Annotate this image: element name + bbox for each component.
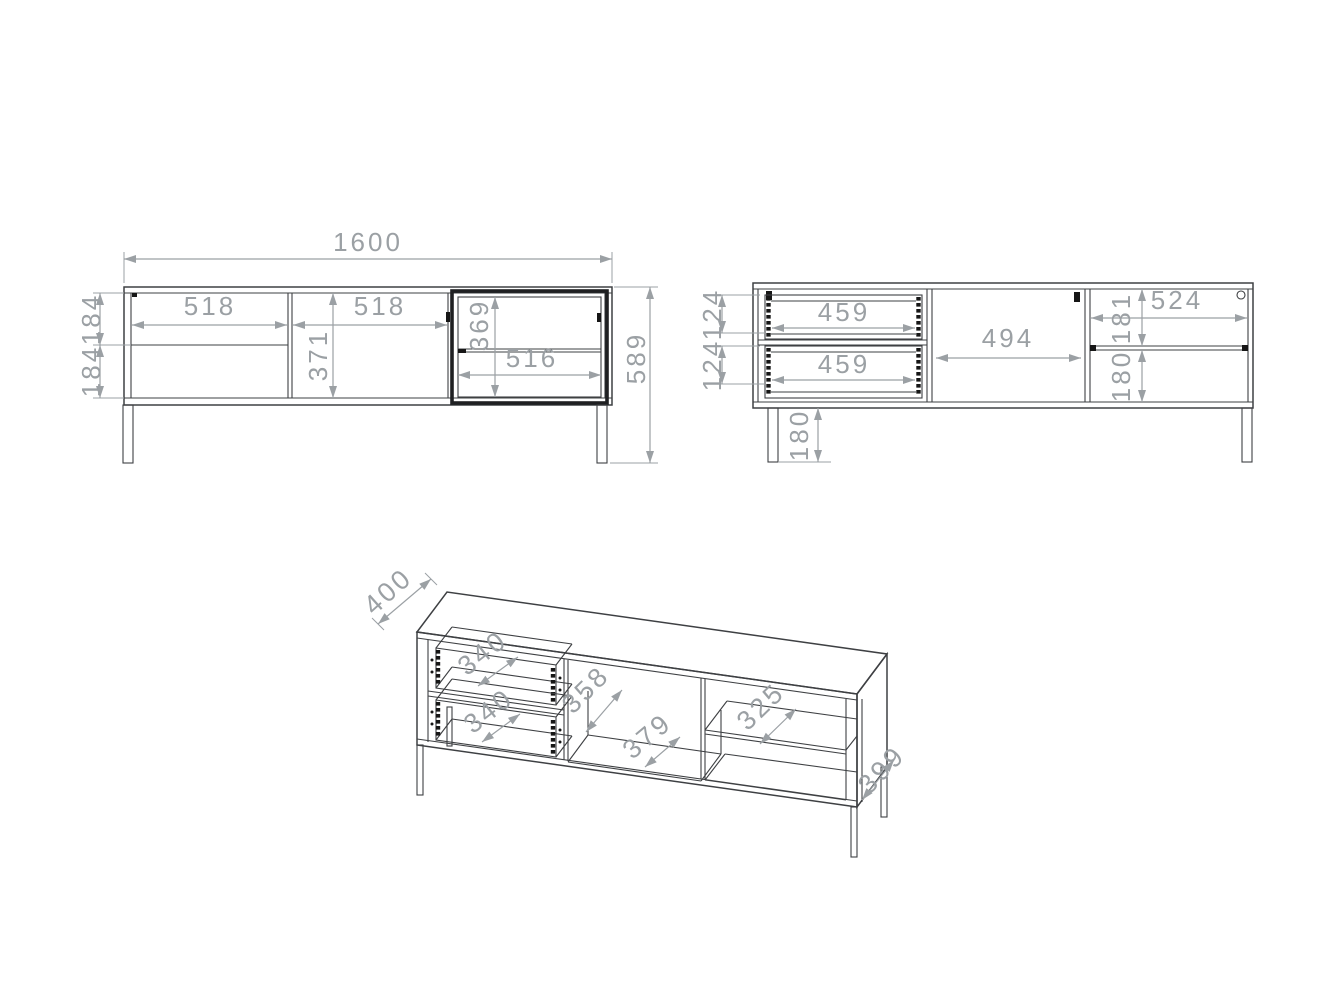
internal-left-leg <box>768 408 778 462</box>
dim-text-top-drawer-height: 184 <box>80 293 106 345</box>
iso-front-right-leg <box>851 807 857 857</box>
dim-bottom-drawer-depth: 340 <box>458 682 520 742</box>
dim-partition-depth: 358 <box>556 660 622 732</box>
dim-text-top-drawer-width: 459 <box>818 297 870 327</box>
internal-cam-detail <box>1237 291 1245 299</box>
dim-text-glass-opening-width: 516 <box>506 343 558 373</box>
dim-text-side-panel-depth: 399 <box>852 740 911 800</box>
iso-right-floor <box>705 754 857 800</box>
dim-text-right-bottom-opening-height: 180 <box>1106 350 1136 402</box>
dim-text-bottom-drawer-width: 459 <box>818 349 870 379</box>
dim-text-glass-opening-height: 369 <box>464 299 494 351</box>
iso-view: 400 340 340 358 379 325 399 <box>360 560 960 870</box>
dim-text-shelf-depth: 325 <box>731 677 791 736</box>
dim-right-bottom-opening-height: 180 <box>1106 350 1142 402</box>
dim-text-left-section-width: 518 <box>184 291 236 321</box>
dim-text-middle-opening-width: 494 <box>982 323 1034 353</box>
dim-glass-opening-height: 369 <box>464 297 495 397</box>
dim-side-panel-depth: 399 <box>852 740 911 800</box>
technical-drawing: 1600 589 518 518 371 184 <box>0 0 1341 1005</box>
front-right-leg <box>597 405 607 463</box>
internal-partition-right <box>1085 289 1090 402</box>
internal-right-leg <box>1242 408 1252 462</box>
dim-middle-door-height: 371 <box>303 293 333 398</box>
dim-bottom-panel-depth: 379 <box>617 707 680 767</box>
iso-right-shelf <box>705 701 857 754</box>
iso-back-left-leg <box>447 707 452 746</box>
iso-front-left-leg <box>417 745 423 795</box>
dim-text-right-section-width: 524 <box>1151 285 1203 315</box>
dim-text-right-top-opening-height: 181 <box>1106 292 1136 344</box>
dim-overall-height: 589 <box>610 287 658 463</box>
dim-text-top-drawer-depth: 340 <box>452 624 513 681</box>
iso-partition-right <box>701 678 705 780</box>
dim-text-bottom-drawer-opening-height: 124 <box>700 339 727 391</box>
dim-text-top-drawer-opening-height: 124 <box>700 288 727 340</box>
dim-text-bottom-panel-depth: 379 <box>617 707 678 765</box>
glass-door-handle <box>597 313 601 322</box>
dim-text-bottom-drawer-depth: 340 <box>458 682 519 739</box>
front-middle-door <box>446 293 450 398</box>
dim-text-cabinet-depth: 400 <box>360 562 418 620</box>
dim-top-drawer-opening-height: 124 <box>700 288 765 340</box>
internal-view: 459 459 124 124 494 524 <box>700 255 1320 485</box>
front-partition <box>288 293 292 398</box>
dim-text-overall-width: 1600 <box>333 227 403 257</box>
front-left-leg <box>123 405 133 463</box>
front-corner-detail <box>132 293 137 297</box>
dim-text-middle-door-width: 518 <box>354 291 406 321</box>
dim-text-overall-height: 589 <box>621 332 651 384</box>
internal-drawer-divider <box>758 340 927 345</box>
dim-top-drawer-width: 459 <box>772 297 915 328</box>
dim-text-leg-height: 180 <box>784 409 814 461</box>
dim-bottom-drawer-width: 459 <box>772 349 915 380</box>
dim-top-drawer-depth: 340 <box>452 624 518 686</box>
front-view: 1600 589 518 518 371 184 <box>80 225 680 480</box>
dim-middle-door-width: 518 <box>293 291 447 325</box>
dim-bottom-drawer-height: 184 <box>80 345 124 398</box>
dim-text-middle-door-height: 371 <box>303 329 333 381</box>
dim-bottom-drawer-opening-height: 124 <box>700 339 765 391</box>
dim-shelf-depth: 325 <box>731 677 796 744</box>
dim-left-section-width: 518 <box>132 291 287 325</box>
internal-hinge-detail <box>1074 292 1080 302</box>
internal-partition-left <box>927 289 932 402</box>
dim-middle-opening-width: 494 <box>936 323 1081 358</box>
door-handle <box>446 312 450 322</box>
dim-text-partition-depth: 358 <box>556 660 615 719</box>
dim-text-bottom-drawer-height: 184 <box>80 345 106 397</box>
dim-leg-height: 180 <box>778 408 831 462</box>
dim-overall-width: 1600 <box>124 227 612 283</box>
